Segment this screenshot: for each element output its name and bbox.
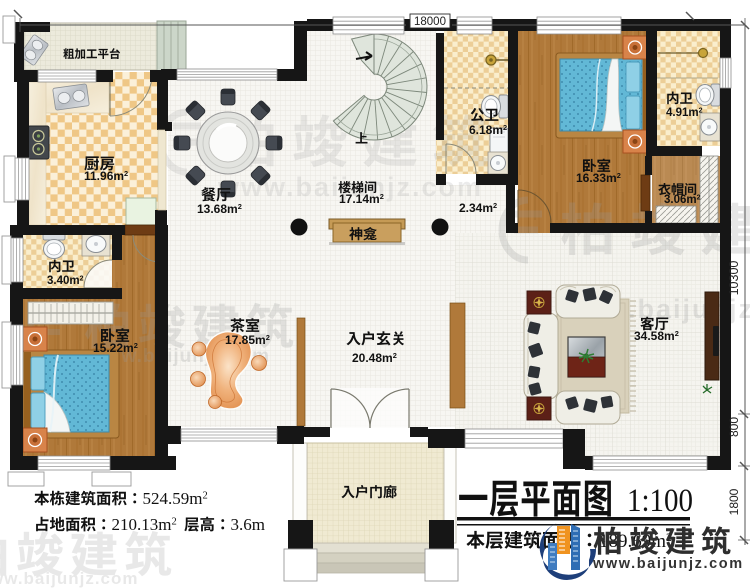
svg-text:3.6m: 3.6m bbox=[231, 515, 265, 534]
svg-text:210.13m2: 210.13m2 bbox=[112, 515, 177, 534]
svg-text:800: 800 bbox=[727, 417, 741, 437]
svg-text:20.48m2: 20.48m2 bbox=[352, 351, 397, 365]
svg-text:3.06m2: 3.06m2 bbox=[664, 193, 701, 206]
svg-text:10300: 10300 bbox=[727, 261, 741, 296]
svg-text:3.40m2: 3.40m2 bbox=[47, 274, 84, 287]
svg-text:18000: 18000 bbox=[414, 16, 446, 28]
svg-text:2.34m2: 2.34m2 bbox=[459, 201, 497, 215]
svg-text:ww.baijunjz.com: ww.baijunjz.com bbox=[0, 569, 139, 588]
svg-text:1:100: 1:100 bbox=[627, 483, 693, 519]
svg-text:6.18m2: 6.18m2 bbox=[469, 123, 507, 137]
svg-text:13.68m2: 13.68m2 bbox=[197, 202, 242, 216]
svg-text:1800: 1800 bbox=[727, 488, 741, 515]
svg-text:15.22m2: 15.22m2 bbox=[93, 341, 138, 355]
svg-text:4.91m2: 4.91m2 bbox=[666, 106, 703, 119]
svg-text:34.58m2: 34.58m2 bbox=[634, 329, 679, 343]
svg-text:www.baijunjz.com: www.baijunjz.com bbox=[592, 556, 744, 572]
svg-text:524.59m2: 524.59m2 bbox=[143, 489, 208, 508]
svg-text:16.33m2: 16.33m2 bbox=[576, 171, 621, 185]
svg-text:11.96m2: 11.96m2 bbox=[84, 169, 128, 183]
svg-text:17.14m2: 17.14m2 bbox=[339, 192, 384, 206]
svg-text:17.85m2: 17.85m2 bbox=[225, 333, 270, 347]
